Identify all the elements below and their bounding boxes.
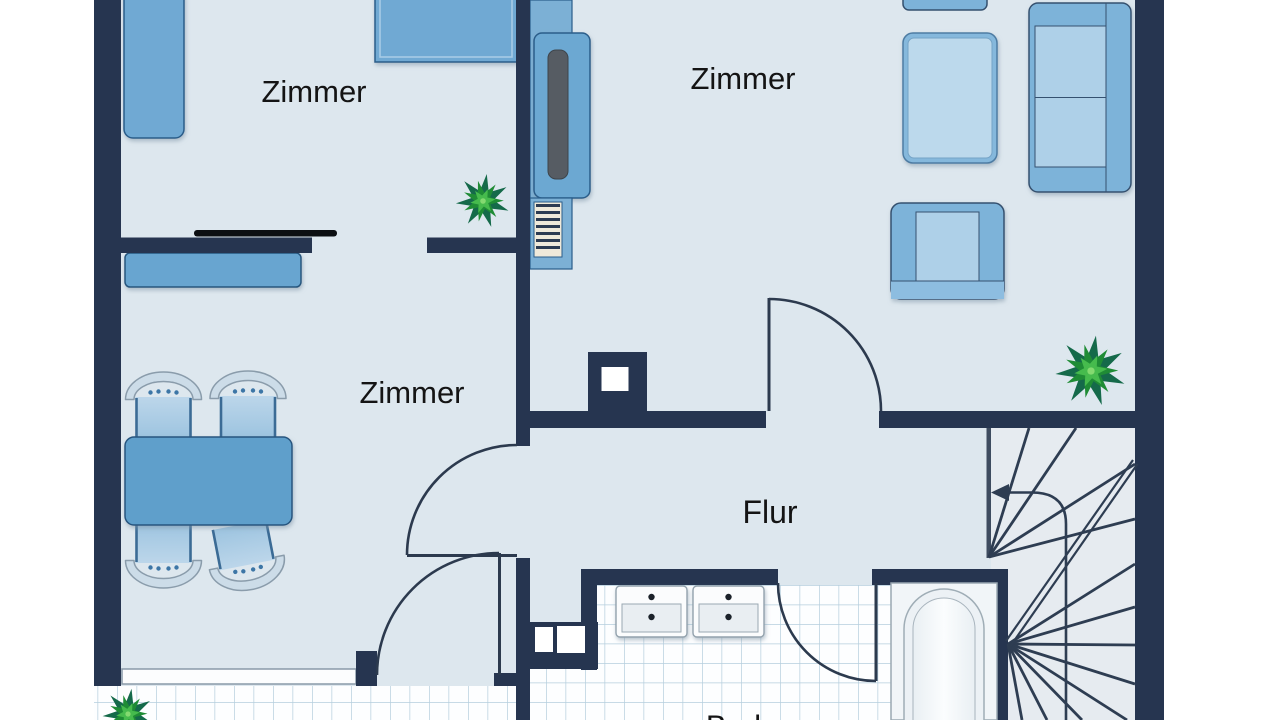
svg-text:Flur: Flur xyxy=(742,494,797,530)
svg-text:Bad: Bad xyxy=(706,709,761,720)
svg-text:Zimmer: Zimmer xyxy=(690,61,795,96)
svg-text:Zimmer: Zimmer xyxy=(359,375,464,410)
svg-text:Zimmer: Zimmer xyxy=(261,74,366,109)
